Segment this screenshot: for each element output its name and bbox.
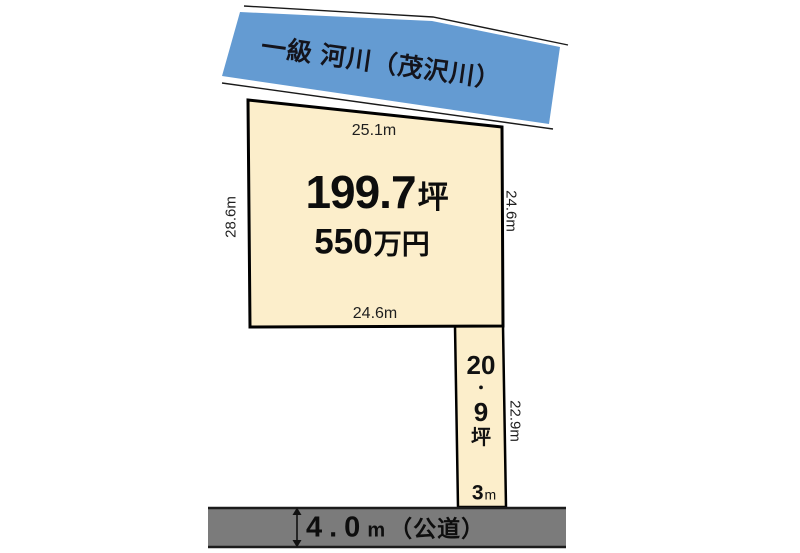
- road-label: 4.0 m （公道）: [306, 514, 485, 543]
- strip-frontage-unit: m: [485, 488, 497, 502]
- parcel-price-label: 550 万円: [314, 225, 429, 260]
- strip-area-char-3: 9: [474, 399, 488, 425]
- parcel-area-label: 199.7 坪: [305, 169, 448, 215]
- parcel-price-value: 550: [314, 225, 372, 260]
- diagram-shapes: [0, 0, 800, 553]
- dim-top-label: 25.1m: [352, 123, 396, 139]
- strip-area-char-1: 20: [467, 352, 496, 378]
- strip-frontage-value: 3: [472, 483, 484, 504]
- parcel-area-unit: 坪: [418, 182, 449, 213]
- road-width-unit: m: [367, 521, 389, 541]
- strip-dim-right-label: 22.9m: [508, 400, 523, 442]
- dim-bottom-label: 24.6m: [353, 306, 397, 322]
- road-width-value: 4.0: [306, 514, 367, 543]
- strip-area-label: 20 ・ 9 坪: [467, 352, 496, 448]
- strip-frontage-label: 3 m: [472, 483, 496, 504]
- parcel-area-value: 199.7: [305, 169, 415, 215]
- dim-right-label: 24.6m: [504, 190, 519, 232]
- road-type-label: （公道）: [389, 518, 485, 541]
- land-plot-diagram: 一級 河川（茂沢川） 25.1m 28.6m 24.6m 24.6m 199.7…: [0, 0, 800, 553]
- strip-area-char-4: 坪: [471, 428, 491, 448]
- parcel-price-unit: 万円: [374, 231, 430, 259]
- dim-left-label: 28.6m: [224, 196, 239, 238]
- strip-area-char-2: ・: [473, 381, 488, 396]
